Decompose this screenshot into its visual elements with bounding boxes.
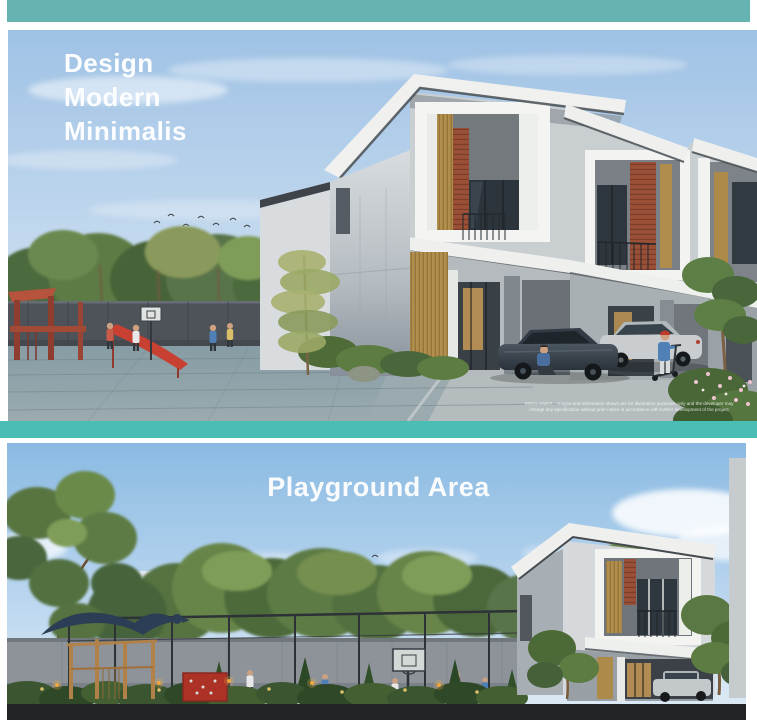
design-title-line-1: Design [64, 46, 187, 80]
foreground-shadow-strip [7, 704, 746, 720]
side-wall-vent [336, 188, 350, 234]
house3-wood-slats [714, 172, 728, 272]
lit-glass-wall [627, 663, 651, 697]
disclaimer-line-1: DISCLAIMER : Images and information show… [508, 401, 750, 407]
red-climb-panel [183, 673, 227, 701]
playground-title: Playground Area [0, 472, 757, 503]
brick-accent [624, 559, 636, 605]
disclaimer-text: DISCLAIMER : Images and information show… [508, 401, 750, 412]
disclaimer-line-2: change any specification without prior n… [508, 407, 750, 413]
design-title-line-2: Modern [64, 80, 187, 114]
divider-accent-bar [0, 421, 757, 438]
brochure-page: Design Modern Minimalis DISCLAIMER : Ima… [0, 0, 757, 720]
house3-window [732, 182, 757, 264]
wood-slat-panel [606, 561, 622, 633]
timber-door [597, 657, 613, 699]
side-wall-vent [520, 595, 532, 641]
house1-wood-slats [437, 114, 453, 230]
header-accent-bar [7, 0, 750, 22]
house2-wood-slats [660, 164, 672, 268]
design-title-line-3: Minimalis [64, 114, 187, 148]
design-title: Design Modern Minimalis [64, 46, 187, 148]
